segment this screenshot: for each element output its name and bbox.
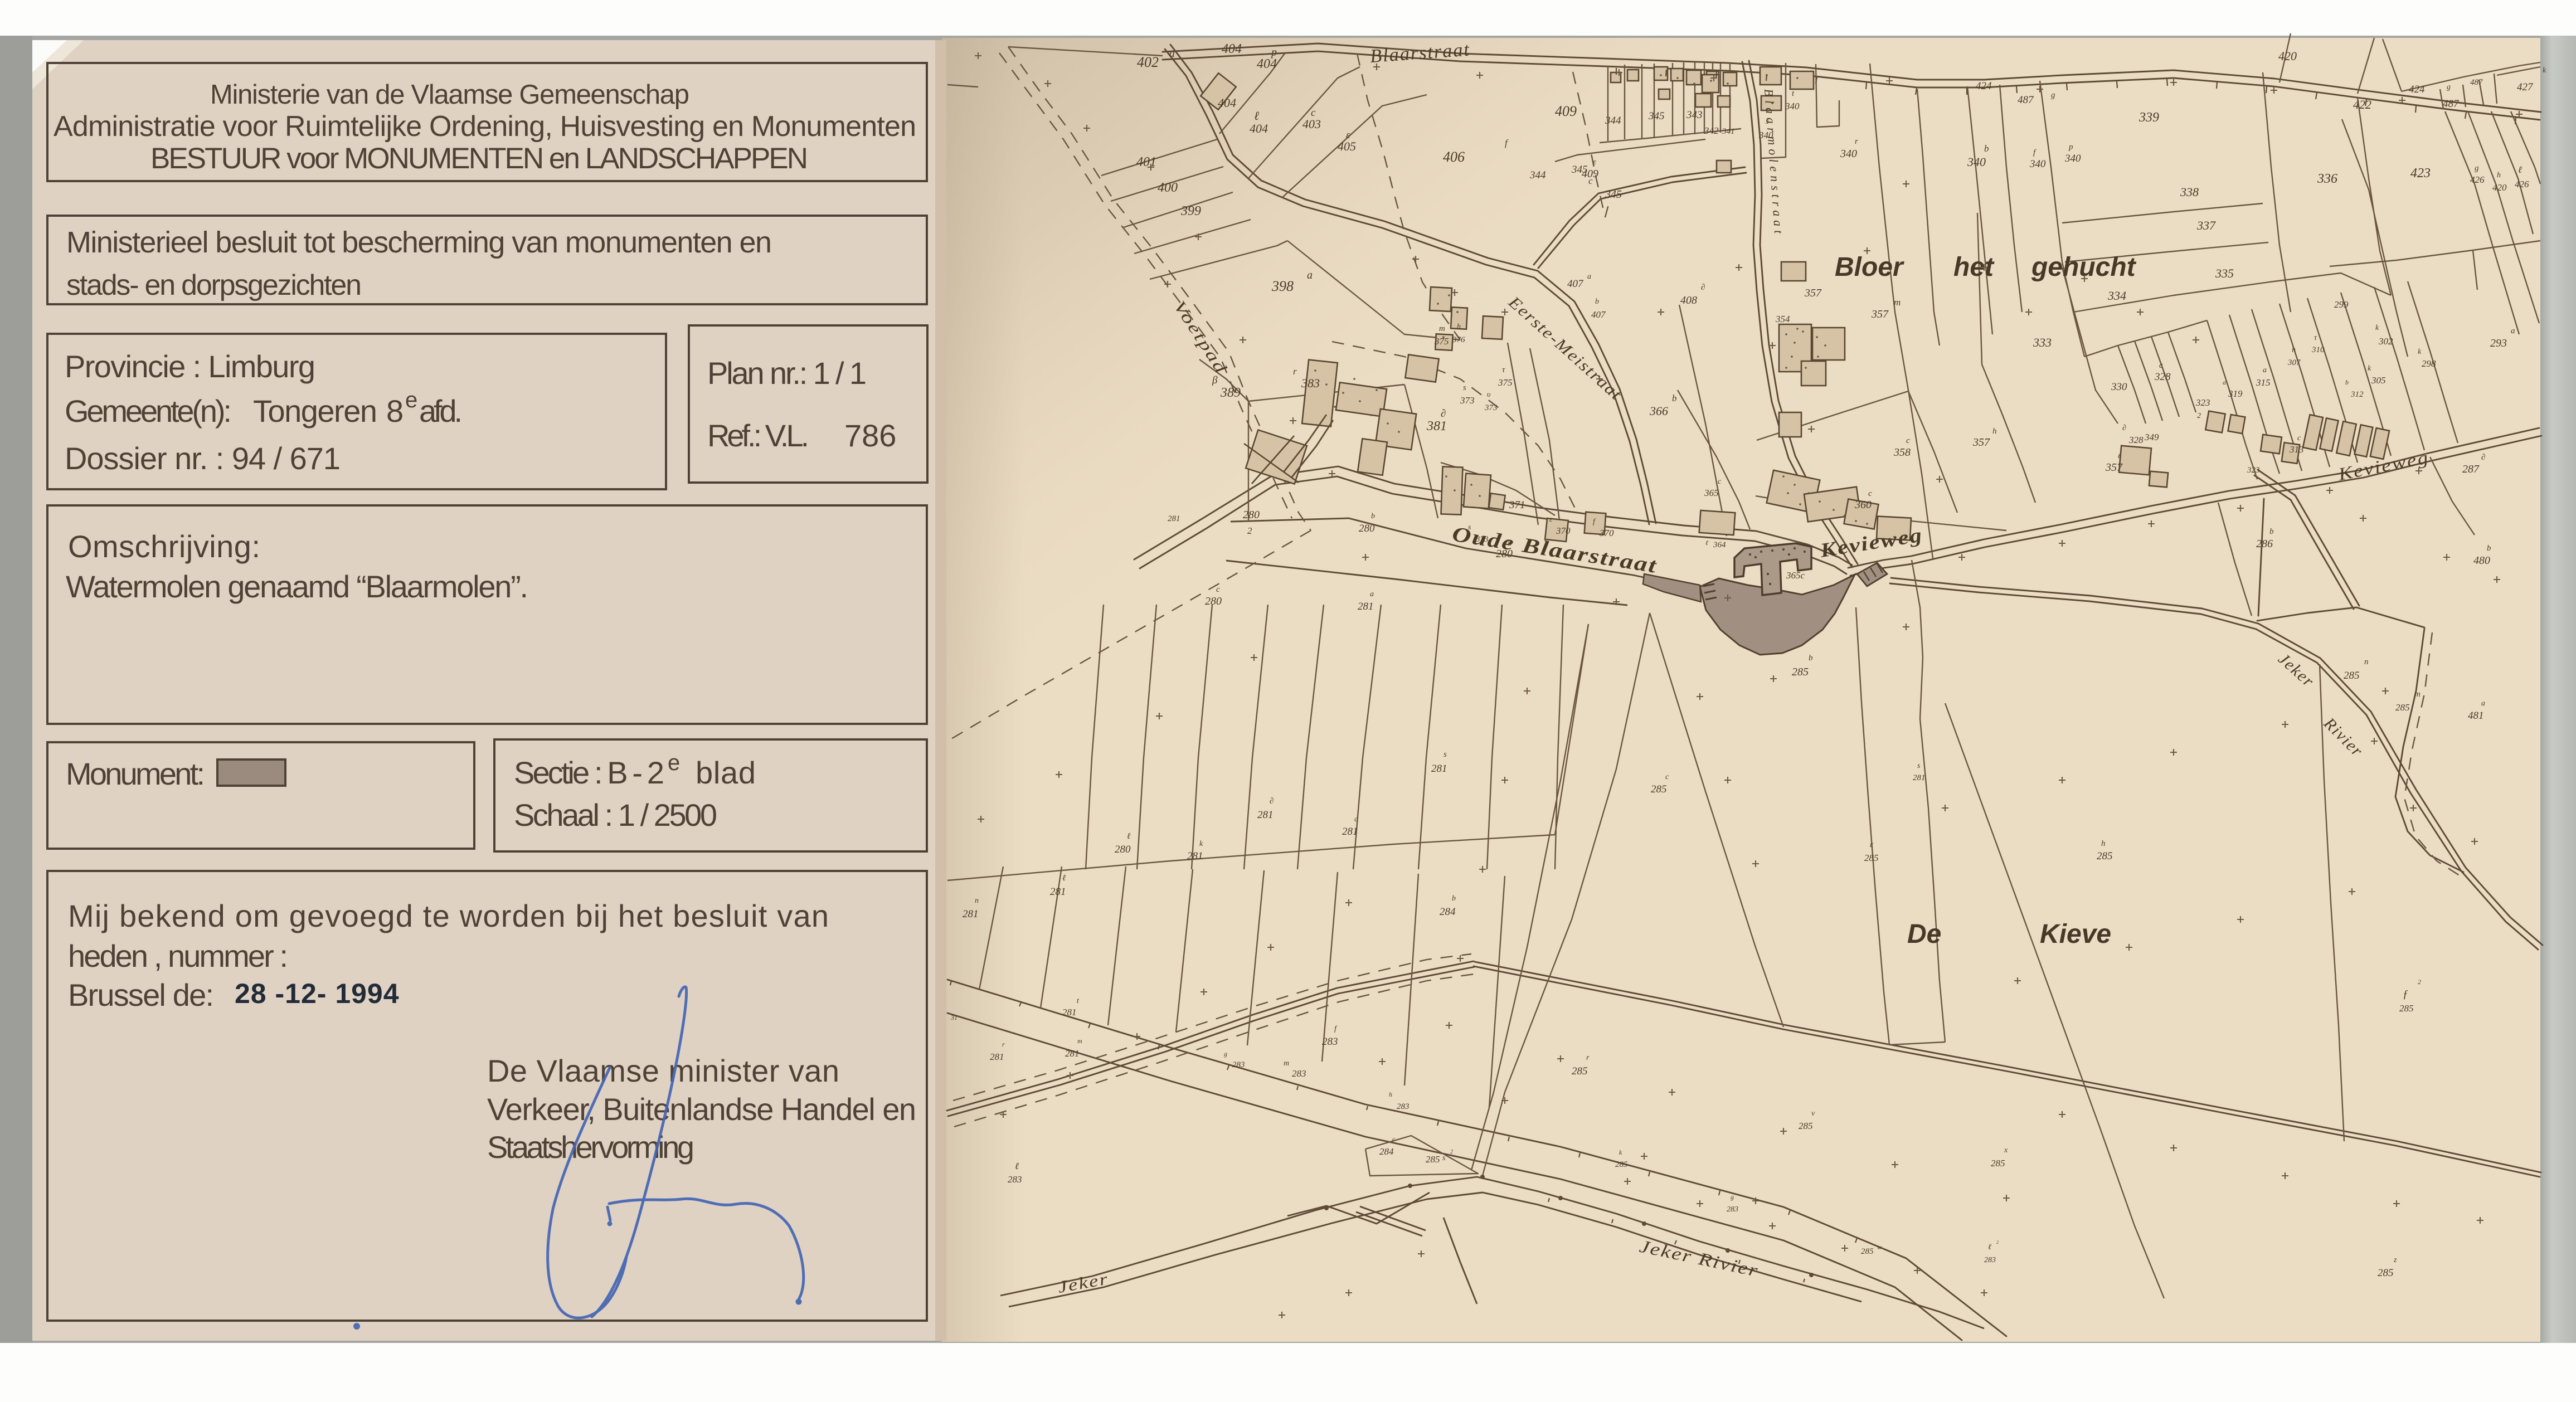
- svg-text:310: 310: [2311, 345, 2325, 354]
- svg-text:Brussel de:: Brussel de:: [68, 977, 214, 1012]
- svg-text:g: g: [1731, 1193, 1734, 1201]
- svg-text:Dossier nr. : 94 / 671: Dossier nr. : 94 / 671: [65, 441, 341, 476]
- svg-text:283: 283: [1008, 1174, 1022, 1185]
- svg-text:Monument:: Monument:: [66, 756, 205, 791]
- svg-text:Mij bekend om gevoegd te: Mij bekend om gevoegd te worden bij het …: [68, 898, 829, 933]
- svg-text:n: n: [2364, 658, 2369, 666]
- svg-text:340: 340: [2029, 158, 2046, 170]
- svg-text:k: k: [2418, 348, 2422, 356]
- svg-text:283: 283: [1727, 1205, 1738, 1214]
- svg-text:357: 357: [1804, 287, 1822, 299]
- svg-text:Watermolen genaamd “Blaarmol: Watermolen genaamd “Blaarmolen”.: [66, 569, 528, 604]
- svg-text:409: 409: [1582, 168, 1598, 180]
- svg-text:340: 340: [2064, 153, 2081, 164]
- svg-text:Gemeente(n):: Gemeente(n):: [65, 393, 232, 429]
- svg-text:283: 283: [1232, 1060, 1245, 1069]
- svg-text:Ministerie van de Vlaamse Geme: Ministerie van de Vlaamse Gemeenschap: [210, 80, 689, 110]
- svg-text:360: 360: [1854, 499, 1872, 511]
- svg-text:b: b: [2345, 378, 2349, 386]
- svg-text:298: 298: [2422, 358, 2436, 369]
- svg-text:280: 280: [1359, 523, 1375, 534]
- svg-text:ℓ: ℓ: [1254, 109, 1260, 123]
- svg-text:g: g: [2447, 83, 2451, 91]
- svg-text:a: a: [2223, 378, 2226, 386]
- svg-text:a: a: [1307, 269, 1313, 281]
- svg-text:Sectie : B - 2: Sectie : B - 2: [514, 755, 664, 790]
- svg-text:τ: τ: [1502, 366, 1505, 374]
- svg-text:280: 280: [1115, 844, 1131, 855]
- svg-text:281: 281: [1257, 809, 1274, 821]
- svg-text:a: a: [1169, 47, 1175, 60]
- svg-text:c: c: [1906, 436, 1910, 445]
- svg-text:422: 422: [2353, 98, 2371, 111]
- svg-text:ε: ε: [1870, 840, 1873, 849]
- svg-text:281: 281: [1065, 1048, 1080, 1059]
- svg-text:407: 407: [1591, 309, 1606, 320]
- svg-text:381: 381: [1426, 419, 1447, 434]
- svg-text:354: 354: [1775, 314, 1790, 324]
- svg-text:∂: ∂: [1701, 283, 1705, 292]
- svg-text:406: 406: [1443, 149, 1465, 165]
- svg-text:480: 480: [2473, 554, 2490, 567]
- svg-text:280: 280: [1496, 548, 1513, 560]
- svg-text:ε: ε: [1346, 129, 1350, 141]
- svg-text:305: 305: [2371, 375, 2386, 386]
- svg-text:2: 2: [1450, 1149, 1453, 1155]
- svg-text:399: 399: [1180, 204, 1201, 218]
- svg-text:a: a: [1370, 590, 1374, 598]
- svg-text:323: 323: [2247, 466, 2260, 475]
- svg-text:a: a: [2511, 327, 2515, 335]
- svg-text:280: 280: [1243, 509, 1260, 521]
- svg-text:Plan nr.: 1 / 1: Plan nr.: 1 / 1: [707, 356, 867, 391]
- svg-text:b: b: [1371, 512, 1375, 520]
- svg-text:Ministerieel besluit tot besch: Ministerieel besluit tot bescherming van…: [66, 226, 772, 259]
- svg-text:285: 285: [1799, 1121, 1813, 1131]
- svg-text:281: 281: [990, 1051, 1004, 1062]
- svg-text:338: 338: [2180, 185, 2199, 199]
- svg-text:k: k: [2375, 324, 2379, 332]
- svg-text:g: g: [1224, 1050, 1227, 1058]
- svg-text:340: 340: [1840, 148, 1857, 160]
- svg-text:c: c: [1216, 585, 1220, 594]
- svg-text:Bloer: Bloer: [1835, 252, 1904, 282]
- svg-text:341: 341: [1722, 127, 1735, 136]
- svg-text:420: 420: [2278, 49, 2297, 63]
- svg-text:Staatshervorming: Staatshervorming: [487, 1130, 694, 1165]
- svg-text:blad: blad: [696, 755, 756, 790]
- svg-text:Administratie voor Ruimtelijke: Administratie voor Ruimtelijke Ordening,…: [54, 110, 916, 143]
- svg-text:∂: ∂: [2122, 424, 2126, 432]
- svg-text:343: 343: [1686, 109, 1703, 121]
- svg-text:r: r: [1586, 1054, 1590, 1062]
- svg-text:280: 280: [1205, 595, 1222, 607]
- svg-text:c: c: [2159, 361, 2163, 370]
- svg-text:b: b: [1672, 393, 1677, 403]
- svg-text:h: h: [2101, 839, 2106, 848]
- svg-text:426: 426: [2515, 179, 2529, 189]
- svg-text:285: 285: [1991, 1158, 2005, 1169]
- svg-text:487: 487: [2443, 98, 2460, 110]
- svg-text:365: 365: [1704, 488, 1719, 498]
- svg-text:398: 398: [1271, 278, 1294, 294]
- svg-text:s: s: [1468, 523, 1471, 532]
- svg-text:h: h: [1457, 323, 1461, 331]
- svg-text:349: 349: [2144, 432, 2159, 442]
- svg-text:m: m: [1077, 1037, 1082, 1045]
- svg-text:g: g: [2475, 164, 2479, 173]
- svg-text:c: c: [1868, 489, 1872, 498]
- svg-text:358: 358: [1893, 446, 1911, 459]
- svg-text:323: 323: [2195, 397, 2210, 408]
- svg-text:BESTUUR voor MONUMENTEN en LAN: BESTUUR voor MONUMENTEN en LANDSCHAPPEN: [150, 142, 808, 175]
- svg-text:345: 345: [1648, 110, 1665, 122]
- svg-text:ε: ε: [2118, 451, 2121, 460]
- svg-text:383: 383: [1301, 376, 1320, 390]
- svg-text:365c: 365c: [1786, 570, 1805, 581]
- svg-text:319: 319: [2228, 388, 2243, 399]
- svg-text:313: 313: [2289, 444, 2304, 455]
- svg-text:407: 407: [1567, 278, 1584, 290]
- svg-text:339: 339: [2138, 110, 2159, 125]
- svg-text:k: k: [2368, 364, 2371, 373]
- svg-text:ℓ: ℓ: [1988, 1243, 1991, 1252]
- svg-text:287: 287: [2462, 463, 2480, 475]
- svg-text:299: 299: [2334, 299, 2349, 310]
- svg-text:364: 364: [1713, 541, 1726, 549]
- svg-text:402: 402: [1137, 54, 1159, 70]
- svg-text:s: s: [1442, 1154, 1446, 1162]
- svg-text:404: 404: [1257, 57, 1277, 71]
- svg-text:z: z: [2393, 1256, 2397, 1264]
- svg-text:2: 2: [1996, 1240, 1999, 1245]
- svg-text:340: 340: [1785, 101, 1800, 111]
- svg-text:333: 333: [2033, 335, 2052, 349]
- svg-text:481: 481: [2468, 710, 2484, 722]
- svg-text:427: 427: [2517, 81, 2534, 93]
- svg-text:285: 285: [1861, 1247, 1874, 1256]
- svg-text:m: m: [1284, 1059, 1289, 1068]
- svg-text:342: 342: [1704, 125, 1719, 136]
- svg-text:340: 340: [1758, 130, 1773, 140]
- svg-text:h: h: [2292, 346, 2296, 354]
- svg-text:285: 285: [2395, 702, 2410, 713]
- svg-text:404: 404: [1222, 42, 1242, 56]
- svg-text:336: 336: [2317, 172, 2337, 186]
- svg-text:284: 284: [1379, 1146, 1394, 1157]
- svg-text:Verkeer, Buitenlandse Handel: Verkeer, Buitenlandse Handel en: [487, 1092, 916, 1127]
- svg-text:285: 285: [1426, 1154, 1440, 1165]
- svg-text:De: De: [1907, 919, 1941, 949]
- svg-text:31: 31: [950, 1014, 958, 1021]
- svg-text:c: c: [1665, 773, 1669, 781]
- svg-text:344: 344: [1605, 115, 1621, 126]
- svg-text:357: 357: [1972, 436, 1990, 449]
- svg-text:286: 286: [2256, 538, 2273, 550]
- svg-text:r: r: [1855, 137, 1858, 146]
- svg-text:366: 366: [1649, 404, 1668, 418]
- svg-text:k: k: [2543, 66, 2546, 75]
- svg-text:281: 281: [1358, 601, 1374, 612]
- svg-text:v: v: [1811, 1109, 1815, 1118]
- svg-text:344: 344: [1529, 169, 1546, 181]
- svg-text:h: h: [1389, 1091, 1392, 1098]
- svg-text:281: 281: [1187, 850, 1203, 862]
- svg-text:Kieve: Kieve: [2040, 919, 2111, 949]
- svg-text:gehucht: gehucht: [2031, 252, 2137, 282]
- svg-text:285: 285: [1572, 1065, 1588, 1077]
- svg-text:487: 487: [2018, 94, 2034, 106]
- svg-text:w: w: [1877, 1243, 1882, 1251]
- svg-text:s: s: [1463, 383, 1466, 392]
- svg-text:373: 373: [1475, 535, 1489, 544]
- svg-text:m: m: [1894, 297, 1901, 308]
- svg-text:371: 371: [1509, 499, 1525, 511]
- svg-text:375: 375: [1498, 377, 1513, 388]
- svg-text:ℓ: ℓ: [1705, 539, 1708, 547]
- svg-text:Ref.: V.L.: Ref.: V.L.: [707, 418, 809, 453]
- svg-text:373: 373: [1460, 395, 1475, 406]
- svg-text:285: 285: [2378, 1267, 2394, 1279]
- svg-text:281: 281: [1342, 826, 1358, 838]
- svg-text:e: e: [405, 388, 417, 412]
- svg-text:s: s: [1766, 117, 1769, 126]
- svg-text:p: p: [1270, 46, 1277, 59]
- svg-text:Tongeren: Tongeren: [253, 393, 377, 429]
- svg-text:283: 283: [1292, 1068, 1306, 1079]
- svg-text:a: a: [2481, 699, 2485, 708]
- svg-text:m: m: [2414, 690, 2421, 699]
- svg-text:ε: ε: [1549, 515, 1553, 524]
- svg-text:370: 370: [1556, 525, 1571, 536]
- svg-text:389: 389: [1220, 386, 1241, 400]
- svg-text:r: r: [1002, 1040, 1005, 1048]
- svg-text:315: 315: [2256, 377, 2271, 388]
- svg-text:403: 403: [1302, 117, 1321, 131]
- svg-text:x: x: [2004, 1146, 2008, 1155]
- svg-text:k: k: [1199, 840, 1203, 848]
- svg-text:∂: ∂: [1441, 408, 1446, 420]
- svg-text:ℓ: ℓ: [1127, 832, 1130, 841]
- svg-text:c: c: [1392, 1135, 1396, 1143]
- svg-text:285: 285: [1864, 853, 1879, 863]
- svg-text:373: 373: [1484, 403, 1498, 412]
- svg-text:ƒ: ƒ: [2403, 988, 2408, 1000]
- svg-text:281: 281: [1050, 886, 1066, 898]
- svg-text:ε: ε: [1593, 158, 1596, 167]
- svg-text:283: 283: [1322, 1036, 1338, 1048]
- svg-text:Provincie : Limburg: Provincie : Limburg: [65, 349, 315, 384]
- svg-text:293: 293: [2490, 337, 2507, 349]
- svg-text:376: 376: [1452, 335, 1465, 344]
- svg-text:a: a: [1587, 272, 1591, 281]
- svg-text:284: 284: [1440, 906, 1456, 918]
- svg-text:c: c: [1311, 107, 1316, 119]
- svg-text:408: 408: [1680, 294, 1697, 306]
- svg-text:357: 357: [2105, 461, 2123, 474]
- svg-text:b: b: [1452, 894, 1456, 903]
- svg-text:8: 8: [386, 393, 404, 429]
- svg-text:b: b: [1809, 654, 1813, 663]
- svg-text:het: het: [1953, 252, 1995, 282]
- svg-text:340: 340: [1967, 155, 1986, 169]
- svg-text:h: h: [1992, 427, 1997, 436]
- svg-text:28 -12- 1994: 28 -12- 1994: [235, 978, 400, 1009]
- svg-text:∂: ∂: [2481, 453, 2485, 462]
- svg-text:De Vlaamse minister van: De Vlaamse minister van: [487, 1053, 839, 1088]
- svg-text:s: s: [1443, 750, 1447, 759]
- svg-text:b: b: [1984, 143, 1989, 154]
- svg-text:357: 357: [1871, 308, 1889, 320]
- svg-text:stads- en dorpsgezichten: stads- en dorpsgezichten: [66, 269, 362, 301]
- svg-text:Omschrijving:: Omschrijving:: [68, 529, 260, 564]
- svg-text:heden , nummer :: heden , nummer :: [68, 938, 288, 973]
- svg-text:Schaal : 1 / 2500: Schaal : 1 / 2500: [514, 797, 717, 833]
- svg-text:2: 2: [2418, 978, 2421, 986]
- svg-text:281: 281: [1168, 514, 1180, 523]
- svg-text:283: 283: [1397, 1102, 1409, 1111]
- svg-text:487: 487: [2470, 78, 2483, 87]
- svg-text:426: 426: [2470, 174, 2485, 185]
- svg-text:b: b: [2487, 544, 2491, 553]
- svg-text:404: 404: [1250, 121, 1268, 135]
- svg-text:283: 283: [1984, 1256, 1996, 1264]
- svg-text:312: 312: [2350, 390, 2364, 399]
- svg-text:afd.: afd.: [419, 393, 463, 429]
- svg-text:281: 281: [963, 908, 979, 920]
- svg-text:285: 285: [2097, 850, 2113, 862]
- svg-text:281: 281: [1062, 1007, 1077, 1018]
- svg-text:307: 307: [2287, 358, 2301, 367]
- svg-text:m: m: [1439, 324, 1445, 333]
- svg-text:b: b: [1595, 298, 1599, 306]
- svg-text:423: 423: [2410, 166, 2431, 181]
- svg-text:409: 409: [1555, 103, 1577, 119]
- svg-text:a: a: [2263, 366, 2267, 374]
- svg-text:328: 328: [2154, 371, 2171, 383]
- svg-text:786: 786: [844, 418, 896, 453]
- svg-text:285: 285: [1615, 1160, 1628, 1169]
- svg-text:400: 400: [1158, 181, 1178, 195]
- svg-text:2: 2: [1247, 525, 1252, 536]
- svg-text:334: 334: [2107, 289, 2126, 303]
- svg-text:370: 370: [1599, 528, 1614, 538]
- svg-text:e: e: [668, 751, 680, 775]
- svg-text:ℓ: ℓ: [1015, 1161, 1019, 1171]
- svg-text:424: 424: [1976, 80, 1992, 92]
- svg-text:k: k: [1619, 1148, 1622, 1156]
- svg-text:ℓ: ℓ: [2518, 164, 2522, 175]
- svg-text:n: n: [975, 897, 979, 905]
- svg-text:330: 330: [2111, 381, 2127, 393]
- svg-text:c: c: [2297, 434, 2301, 442]
- svg-text:328: 328: [2128, 435, 2144, 445]
- svg-text:b: b: [2269, 527, 2274, 536]
- svg-text:∂: ∂: [1270, 797, 1274, 806]
- svg-text:ℓ: ℓ: [1062, 874, 1066, 883]
- svg-text:420: 420: [2492, 182, 2507, 193]
- svg-text:c: c: [1354, 815, 1358, 824]
- svg-text:p: p: [2068, 143, 2073, 152]
- svg-text:424: 424: [2409, 84, 2425, 95]
- svg-text:g: g: [2051, 91, 2055, 100]
- svg-text:s: s: [1917, 762, 1921, 770]
- svg-text:337: 337: [2196, 218, 2216, 232]
- svg-text:302: 302: [2378, 336, 2393, 347]
- svg-text:β: β: [1212, 374, 1218, 386]
- svg-text:335: 335: [2215, 266, 2234, 280]
- svg-text:2: 2: [2197, 412, 2201, 420]
- svg-text:c: c: [1718, 478, 1722, 486]
- svg-text:404: 404: [1218, 96, 1236, 110]
- svg-text:285: 285: [1651, 783, 1667, 795]
- svg-text:281: 281: [1913, 773, 1926, 782]
- svg-text:281: 281: [1431, 763, 1447, 775]
- svg-text:345: 345: [1605, 188, 1622, 201]
- svg-text:r: r: [1293, 366, 1297, 377]
- svg-text:g: g: [1508, 537, 1513, 546]
- svg-text:285: 285: [2399, 1003, 2414, 1014]
- svg-text:405: 405: [1338, 139, 1356, 153]
- svg-text:285: 285: [2344, 670, 2360, 681]
- svg-text:υ: υ: [1487, 391, 1490, 399]
- svg-text:285: 285: [1792, 666, 1809, 678]
- svg-text:h: h: [2497, 171, 2501, 179]
- svg-text:375: 375: [1434, 336, 1449, 347]
